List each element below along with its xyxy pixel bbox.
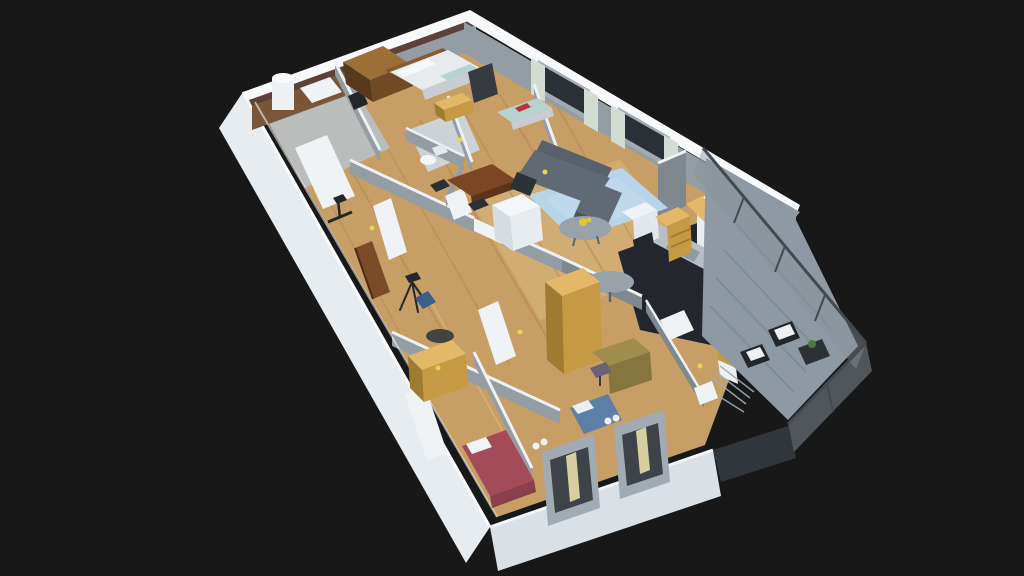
toilet-bowl (420, 155, 436, 165)
wardrobe-side (545, 282, 564, 374)
wardrobe-front (562, 282, 602, 374)
office-wardrobe-yellow (545, 268, 602, 374)
flowers (579, 218, 587, 226)
balcony-plant (808, 340, 816, 348)
curtain-roll (605, 418, 612, 425)
curtain-roll (533, 443, 540, 450)
apartment-3d-render (0, 0, 1024, 576)
boiler-top (272, 73, 294, 83)
render-stage (0, 0, 1024, 576)
